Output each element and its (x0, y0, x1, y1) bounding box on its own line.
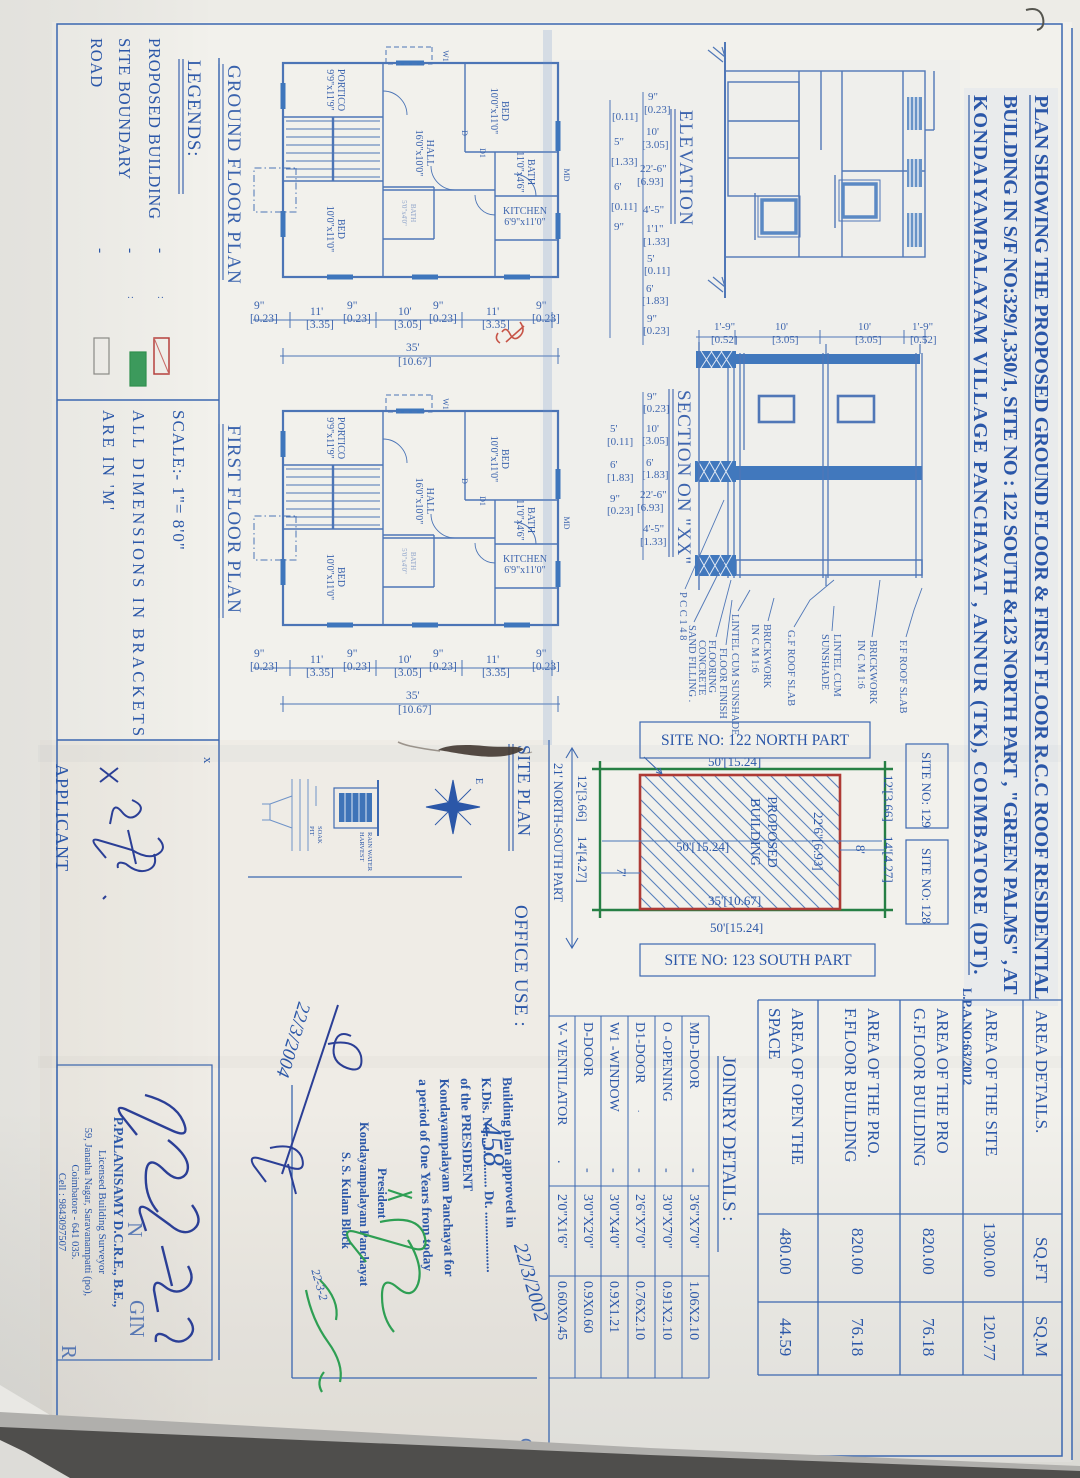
svg-text:IN C M 1:6: IN C M 1:6 (855, 640, 866, 689)
svg-text:P C C 1 4 8: P C C 1 4 8 (677, 592, 688, 640)
svg-text:[1.83]: [1.83] (642, 469, 669, 481)
svg-text:21' NORTH-SOUTH PART: 21' NORTH-SOUTH PART (551, 763, 565, 903)
svg-text:1'-9": 1'-9" (714, 321, 735, 333)
svg-text:AREA OF OPEN THE: AREA OF OPEN THE (788, 1008, 807, 1165)
svg-text:BUILDING: BUILDING (747, 798, 762, 866)
svg-text:[1.83]: [1.83] (642, 295, 669, 307)
svg-text:1'1": 1'1" (646, 223, 663, 235)
svg-text:KONDAIYAMPALAYAM VILLAGE PANCH: KONDAIYAMPALAYAM VILLAGE PANCHAYAT , ANN… (969, 95, 991, 975)
svg-text:820.00: 820.00 (919, 1228, 938, 1275)
svg-text:GIN: GIN (125, 1300, 149, 1337)
svg-text:JOINERY DETAILS :: JOINERY DETAILS : (718, 1056, 738, 1221)
svg-text:0.60X0.45: 0.60X0.45 (554, 1281, 569, 1340)
svg-text:9": 9" (614, 221, 624, 233)
svg-text:SITE NO: 128: SITE NO: 128 (919, 848, 934, 924)
svg-text:LINTEL CUM: LINTEL CUM (831, 634, 842, 698)
svg-text:FLOOR FINISH: FLOOR FINISH (717, 648, 728, 719)
svg-text:1300.00: 1300.00 (980, 1222, 999, 1277)
svg-text:10': 10' (858, 321, 871, 333)
svg-text:0.9X1.21: 0.9X1.21 (606, 1281, 621, 1333)
svg-text:[1.33]: [1.33] (611, 156, 638, 168)
svg-text:IN C M 1:6: IN C M 1:6 (749, 624, 760, 673)
svg-text::: : (125, 296, 136, 299)
svg-text:-: - (122, 248, 139, 253)
svg-text:[0.23]: [0.23] (607, 505, 634, 517)
svg-text:[0.11]: [0.11] (611, 201, 637, 213)
svg-text:[0.11]: [0.11] (612, 111, 638, 123)
svg-text:3'0"X2'0": 3'0"X2'0" (580, 1194, 595, 1249)
svg-text:44.59: 44.59 (776, 1318, 795, 1356)
svg-text:9": 9" (647, 391, 657, 403)
svg-text:2'6"X7'0": 2'6"X7'0" (632, 1194, 647, 1249)
svg-text:SOAK: SOAK (316, 826, 323, 844)
svg-text:V- VENTILATOR: V- VENTILATOR (554, 1022, 569, 1126)
svg-text:9": 9" (610, 493, 620, 505)
svg-text:F.FLOOR BUILDING: F.FLOOR BUILDING (841, 1008, 860, 1162)
svg-text:[0.52]: [0.52] (711, 334, 738, 346)
svg-text:-: - (92, 248, 109, 253)
svg-text:10': 10' (646, 126, 659, 138)
svg-text:-: - (686, 1168, 701, 1173)
svg-text:[0.23]: [0.23] (644, 104, 671, 116)
svg-text:76.18: 76.18 (848, 1318, 867, 1356)
svg-text:3'0"X4'0": 3'0"X4'0" (606, 1194, 621, 1249)
svg-text:GROUND FLOOR PLAN: GROUND FLOOR PLAN (223, 65, 244, 285)
svg-text:RAIN WATER: RAIN WATER (366, 832, 373, 872)
svg-text:President: President (375, 1168, 389, 1219)
svg-text:12'[3.66]: 12'[3.66] (881, 775, 896, 822)
svg-text:22'-6": 22'-6" (640, 163, 667, 175)
svg-text:3'0"X7'0": 3'0"X7'0" (659, 1194, 674, 1249)
svg-text:6': 6' (614, 181, 622, 193)
svg-text:14'[4.27]: 14'[4.27] (881, 836, 896, 883)
svg-text:ELEVATION: ELEVATION (675, 110, 696, 227)
svg-text:1.06X2.10: 1.06X2.10 (686, 1281, 701, 1340)
svg-text:10': 10' (775, 321, 788, 333)
svg-text:[1.33]: [1.33] (640, 536, 667, 548)
svg-text:BUILDING IN S/F NO:329/1,330/1: BUILDING IN S/F NO:329/1,330/1, SITE NO … (999, 95, 1021, 995)
svg-text:PLAN SHOWING THE PROPOSED GRO: PLAN SHOWING THE PROPOSED GROUND FLOOR &… (1030, 95, 1052, 1000)
svg-text:ARE IN 'M': ARE IN 'M' (99, 410, 118, 510)
svg-text:SQ.M: SQ.M (1032, 1316, 1051, 1357)
svg-text:5': 5' (647, 253, 655, 265)
svg-text:[6.93]: [6.93] (637, 502, 664, 514)
svg-text:LINTEL CUM SUNSHADE: LINTEL CUM SUNSHADE (729, 614, 740, 736)
svg-text:3'6"X7'0": 3'6"X7'0" (686, 1194, 701, 1249)
svg-text:SITE NO: 129: SITE NO: 129 (919, 752, 934, 828)
svg-text:-: - (606, 1168, 621, 1173)
svg-text:-: - (632, 1168, 647, 1173)
svg-text:[6.93]: [6.93] (637, 176, 664, 188)
svg-text:50'[15.24]: 50'[15.24] (710, 920, 763, 935)
svg-text:[1.83]: [1.83] (607, 472, 634, 484)
svg-text:1'-9": 1'-9" (912, 321, 933, 333)
svg-text:PIT: PIT (308, 826, 315, 836)
svg-text:AREA OF THE PRO.: AREA OF THE PRO. (864, 1008, 883, 1158)
svg-text:76.18: 76.18 (919, 1318, 938, 1356)
svg-text:22'-6": 22'-6" (640, 489, 667, 501)
svg-text:.: . (554, 1160, 569, 1164)
svg-text:P.PALANISAMY D.C.R.E., B.E.,: P.PALANISAMY D.C.R.E., B.E., (111, 1117, 126, 1307)
svg-text:FLOORING: FLOORING (706, 640, 717, 694)
svg-text:[3.05]: [3.05] (642, 435, 669, 447)
svg-text::: : (155, 296, 166, 299)
svg-text:D1-DOOR: D1-DOOR (632, 1022, 647, 1084)
svg-text:SPACE: SPACE (765, 1008, 784, 1059)
svg-text:59, Janatha Nagar, Saravanampa: 59, Janatha Nagar, Saravanampatti (po), (82, 1128, 93, 1296)
svg-text:ROAD: ROAD (87, 38, 106, 88)
svg-text:5': 5' (610, 423, 618, 435)
svg-text:S. S. Kulam Block: S. S. Kulam Block (339, 1152, 353, 1249)
svg-text:[1.33]: [1.33] (643, 236, 670, 248)
svg-text:458: 458 (473, 1120, 511, 1168)
svg-text:14'[4.27]: 14'[4.27] (575, 836, 590, 883)
svg-text:6': 6' (610, 459, 618, 471)
svg-text:SCALE:- 1"= 8'0": SCALE:- 1"= 8'0" (169, 410, 188, 551)
svg-text:G.F ROOF SLAB: G.F ROOF SLAB (785, 630, 796, 706)
svg-text:CONCRETE: CONCRETE (696, 640, 707, 695)
svg-text:L.P.A.NO:63/2012: L.P.A.NO:63/2012 (960, 988, 974, 1085)
svg-text:4'-5": 4'-5" (643, 204, 664, 216)
svg-text:10': 10' (646, 423, 659, 435)
svg-text:[0.52]: [0.52] (910, 334, 937, 346)
svg-text:SQ.FT: SQ.FT (1032, 1237, 1051, 1283)
svg-text:[0.23]: [0.23] (643, 403, 670, 415)
svg-text:Licensed Building Surveyor: Licensed Building Surveyor (96, 1150, 108, 1274)
svg-text:R: R (57, 1345, 81, 1359)
svg-text:AREA DETAILS.: AREA DETAILS. (1032, 1010, 1051, 1133)
svg-text:FIRST FLOOR PLAN: FIRST FLOOR PLAN (223, 425, 244, 614)
svg-text:LEGENDS:: LEGENDS: (183, 60, 203, 157)
svg-text:9": 9" (648, 91, 658, 103)
svg-text:-: - (152, 248, 169, 253)
svg-text:HARVEST: HARVEST (358, 832, 365, 861)
svg-text:Kondayampalayam Panchayat: Kondayampalayam Panchayat (357, 1122, 371, 1287)
svg-text:G.FLOOR BUILDING: G.FLOOR BUILDING (910, 1008, 929, 1167)
svg-text:D-DOOR: D-DOOR (580, 1022, 595, 1077)
svg-text:of the PRESIDENT: of the PRESIDENT (458, 1078, 476, 1192)
svg-text:6': 6' (646, 457, 654, 469)
svg-text:AREA OF THE PRO: AREA OF THE PRO (933, 1008, 952, 1154)
svg-text:[0.23]: [0.23] (643, 325, 670, 337)
svg-text:[3.05]: [3.05] (772, 334, 799, 346)
svg-text:PROPOSED: PROPOSED (764, 796, 779, 868)
svg-text:35'[10.67]: 35'[10.67] (708, 893, 761, 908)
svg-text:12'[3.66]: 12'[3.66] (575, 775, 590, 822)
svg-text:6': 6' (646, 283, 654, 295)
svg-text:2'0"X1'6": 2'0"X1'6" (554, 1194, 569, 1249)
svg-text:[0.11]: [0.11] (644, 265, 670, 277)
svg-text:SITE BOUNDARY: SITE BOUNDARY (115, 38, 134, 180)
svg-text:PROPOSED BUILDING: PROPOSED BUILDING (145, 38, 164, 220)
svg-text:9": 9" (647, 313, 657, 325)
svg-text:Coimbatore - 641 035.: Coimbatore - 641 035. (69, 1164, 80, 1259)
svg-text:OFFICE USE :: OFFICE USE : (510, 905, 531, 1027)
svg-text:MD-DOOR: MD-DOOR (686, 1022, 701, 1090)
svg-text:SITE NO: 123 SOUTH PART: SITE NO: 123 SOUTH PART (664, 952, 852, 969)
svg-text:Cell : 9843097507: Cell : 9843097507 (56, 1173, 67, 1251)
svg-text:820.00: 820.00 (848, 1228, 867, 1275)
svg-text:-: - (580, 1168, 595, 1173)
svg-text:BRICKWORK: BRICKWORK (761, 624, 772, 689)
svg-text:4'-5": 4'-5" (643, 523, 664, 535)
svg-text:22'6"[6.93]: 22'6"[6.93] (811, 812, 826, 871)
svg-text:BRICKWORK: BRICKWORK (867, 640, 878, 705)
svg-text:.: . (636, 1110, 646, 1112)
svg-text:0.9X0.60: 0.9X0.60 (580, 1281, 595, 1333)
svg-text:5": 5" (614, 136, 624, 148)
svg-text:8': 8' (853, 845, 868, 854)
svg-text:0.76X2.10: 0.76X2.10 (632, 1281, 647, 1340)
svg-text:-: - (659, 1168, 674, 1173)
svg-text:APPLICANT: APPLICANT (52, 764, 72, 872)
svg-text:480.00: 480.00 (776, 1228, 795, 1275)
svg-text:[3.05]: [3.05] (642, 139, 669, 151)
svg-text:0.91X2.10: 0.91X2.10 (659, 1281, 674, 1340)
svg-text:[0.11]: [0.11] (607, 436, 633, 448)
svg-text:SUNSHADE: SUNSHADE (819, 634, 830, 690)
svg-text:AREA OF THE SITE: AREA OF THE SITE (982, 1008, 1001, 1156)
svg-text:50'[15.24]: 50'[15.24] (676, 839, 729, 854)
svg-text:[3.05]: [3.05] (855, 334, 882, 346)
svg-text:7': 7' (614, 868, 629, 877)
svg-text:ALL DIMENSIONS IN BRACKETS: ALL DIMENSIONS IN BRACKETS (129, 410, 148, 736)
svg-text:120.77: 120.77 (980, 1314, 999, 1361)
svg-text:E: E (473, 778, 484, 784)
svg-text:SECTION ON "XX": SECTION ON "XX" (673, 390, 694, 565)
svg-text:F.F ROOF SLAB: F.F ROOF SLAB (897, 640, 908, 714)
